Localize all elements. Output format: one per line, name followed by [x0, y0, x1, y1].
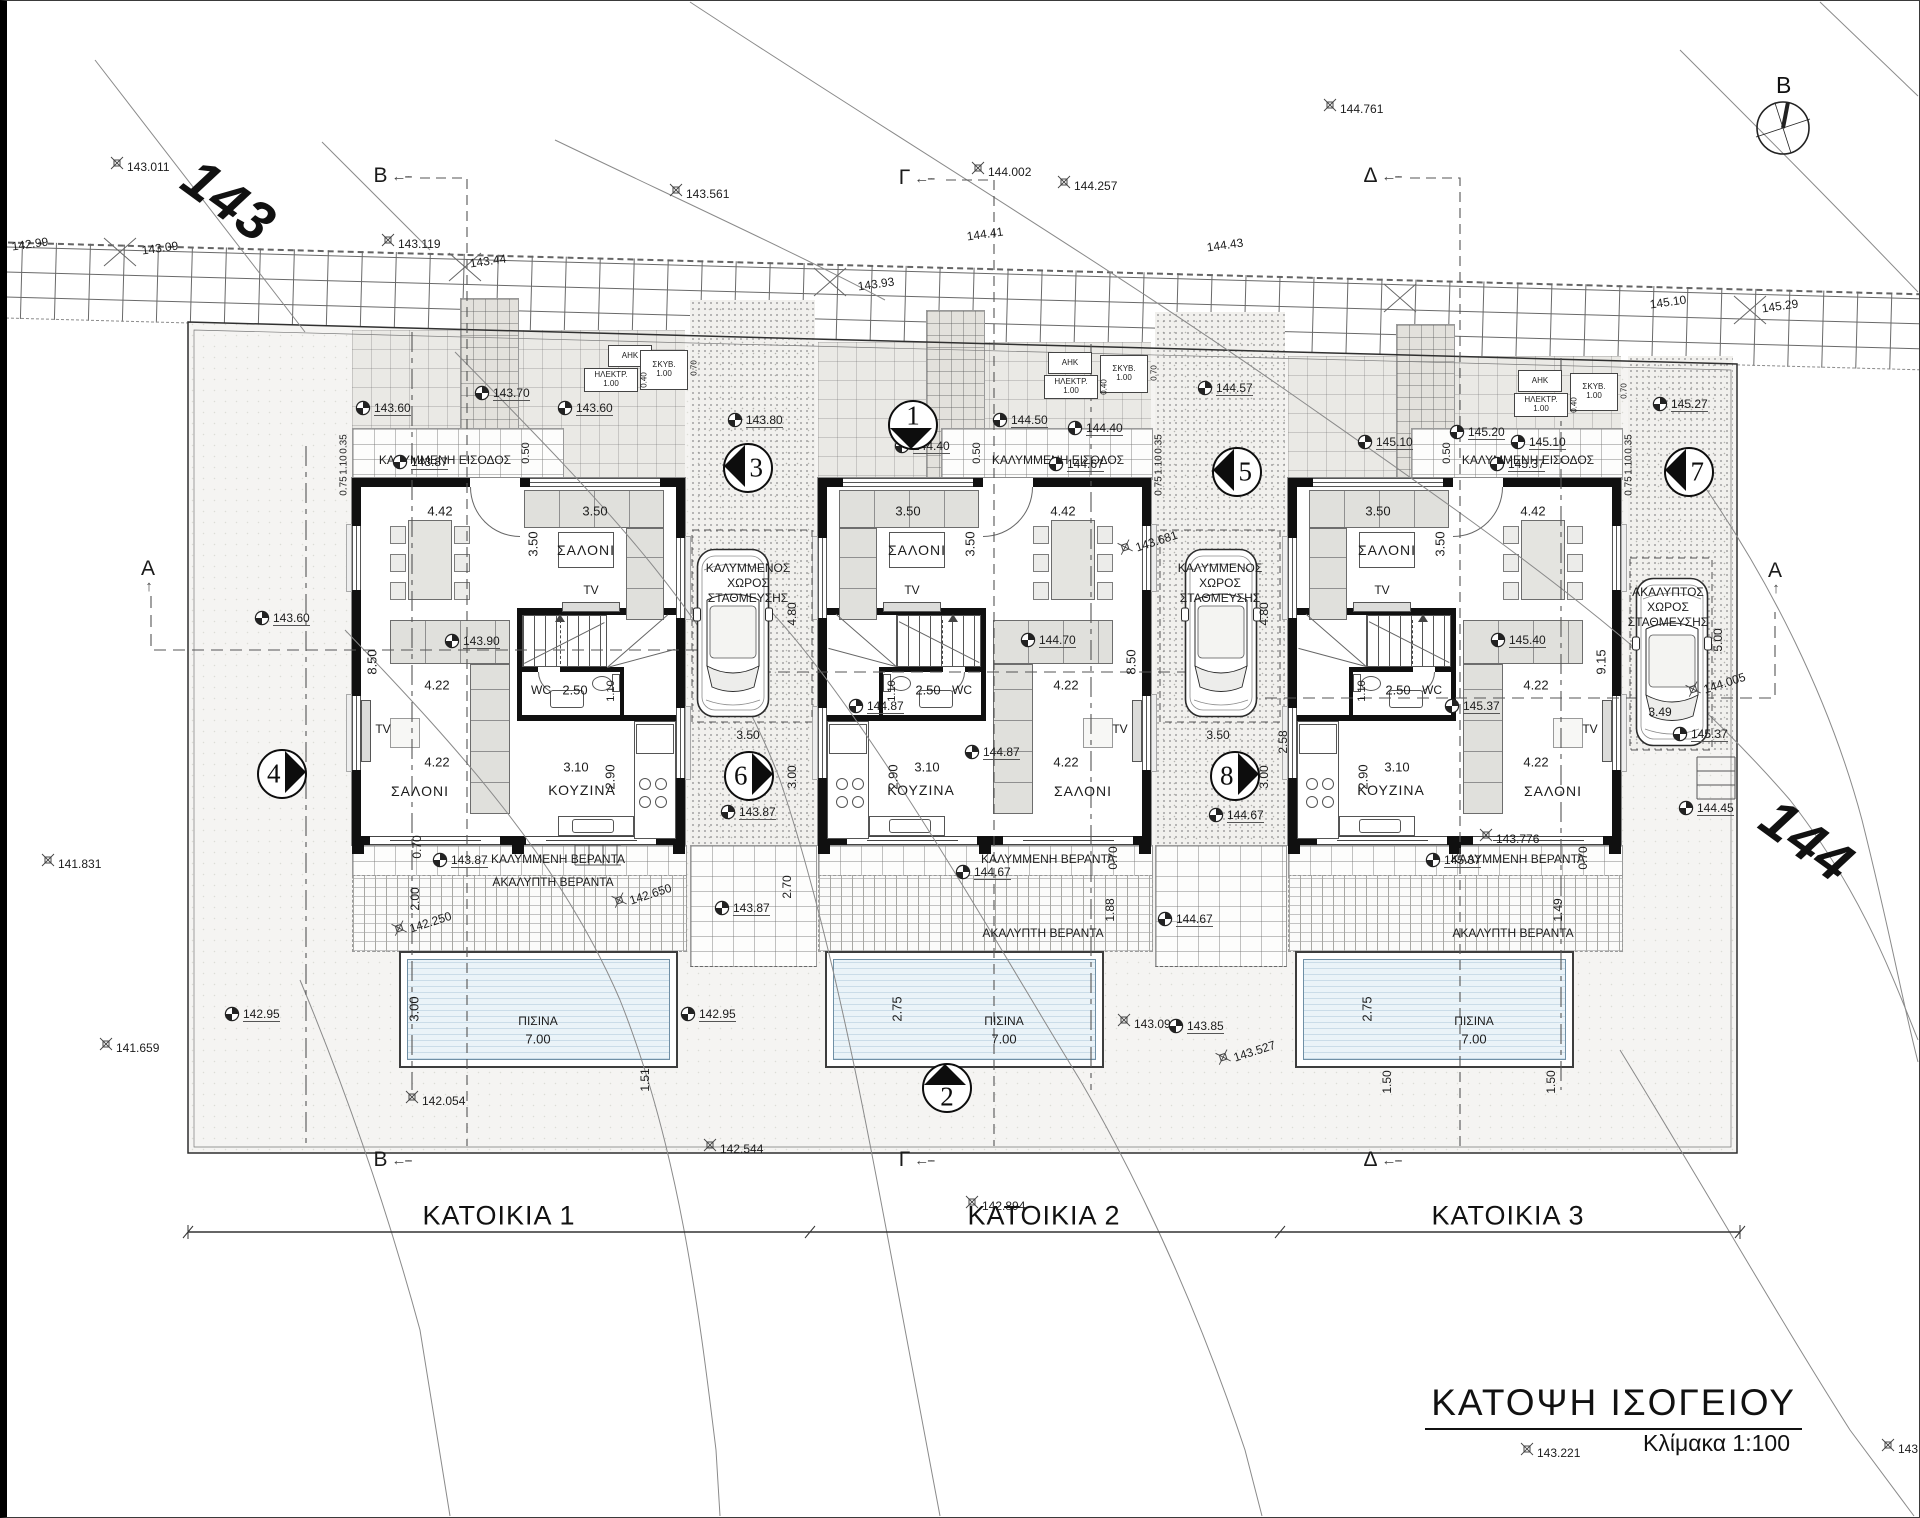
house-3-pool-water — [1303, 959, 1566, 1060]
elevation-value: 144.67 — [1227, 808, 1264, 823]
annotation-spot-18: 141.659 — [99, 1037, 159, 1051]
level-marker-icon — [474, 385, 490, 401]
annotation-text-28: 3.50 — [736, 728, 759, 742]
spot-elevation-value: 143.776 — [1496, 832, 1539, 846]
level-marker-icon — [1357, 434, 1373, 450]
house-1-wall-7 — [676, 618, 685, 708]
level-marker-icon — [1449, 424, 1465, 440]
level-marker-icon — [1067, 420, 1083, 436]
house-1-dim-living-b: 4.22 — [424, 755, 449, 770]
house-1-wall-20 — [673, 842, 685, 854]
elevation-value: 145.10 — [1376, 435, 1413, 450]
site-plan-drawing: 143 144 B ΚΑΤΟΙΚΙΑ 1 ΚΑΤΟΙΚΙΑ 2 ΚΑΤΟΙΚΙΑ… — [0, 0, 1920, 1518]
house-1-window-left-1 — [352, 526, 361, 590]
house-3-dim-wc-w: 2.50 — [1385, 683, 1410, 698]
annotation-elevation-16: 142.95 — [224, 1006, 280, 1022]
house-3-chair-0 — [1567, 526, 1583, 544]
annotation-elevation-34: 144.57 — [1197, 380, 1253, 396]
house-1-wall-0 — [352, 478, 470, 487]
elevation-value: 144.87 — [983, 745, 1020, 760]
house-2-chair-0 — [1097, 526, 1113, 544]
level-marker-icon — [714, 900, 730, 916]
house-3-elev-court-0: 145.10 — [1357, 434, 1413, 450]
house-2-dim-dining: 4.42 — [1050, 504, 1075, 519]
house-1-dim-side: 8.50 — [365, 649, 380, 674]
utility-dim-070-3: 0.70 — [1620, 383, 1629, 399]
house-3-wall-4 — [1612, 590, 1621, 696]
annotation-spot-0: 143.011 — [110, 156, 170, 170]
utility-label: ΑΗΚ — [622, 352, 638, 361]
house-2-wc-label: WC — [952, 683, 972, 697]
utility-dim: 1.00 — [603, 380, 619, 389]
house-2-pool-water — [833, 959, 1096, 1060]
house-3-sill-3 — [1282, 536, 1288, 620]
section-letter-label: Δ — [1363, 1148, 1377, 1172]
house-2-stove-burner-0 — [852, 778, 864, 790]
house-1-lounge-sofa-v — [626, 528, 664, 620]
parking-label-1: ΚΑΛΥΜΜΕΝΟΣ — [706, 561, 791, 575]
section-marker-number: 2 — [940, 1082, 954, 1113]
house-1-elev-court-2: 143.60 — [557, 400, 613, 416]
house-2-dim-kitchen-h: 2.90 — [886, 764, 901, 789]
elevation-value: 143.60 — [273, 611, 310, 626]
utility-ahk-house-2: ΑΗΚ — [1048, 352, 1092, 374]
section-arrow-icon: ←-- — [392, 168, 411, 185]
house-2-dim-kitchen-w: 3.10 — [914, 760, 939, 775]
section-marker-triangle-icon — [285, 751, 306, 793]
section-letter-label: Γ — [899, 1148, 911, 1172]
house-3-dim-entrance-2: 0.75 — [1624, 476, 1635, 495]
house-3-stove-burner-0 — [1322, 778, 1334, 790]
house-2-elev-court-2: 144.40 — [1067, 420, 1123, 436]
utility-ahk-house-3: ΑΗΚ — [1518, 370, 1562, 392]
section-letter-Γ-4: Γ←-- — [899, 1148, 934, 1172]
house-1-window-right-1 — [676, 538, 685, 618]
annotation-text-60: 0.70 — [410, 835, 424, 858]
house-1-chair-3 — [454, 526, 470, 544]
house-2-kitchen-sink — [889, 819, 931, 833]
section-marker-number: 5 — [1239, 457, 1253, 488]
spot-elevation-value: 143.221 — [1537, 1446, 1580, 1460]
annotation-spot-19: 142.054 — [405, 1090, 465, 1104]
house-1-window-top — [530, 478, 660, 487]
house-2-wall-5 — [1142, 770, 1151, 845]
annotation-spot-7: 144.002 — [971, 161, 1031, 175]
elevation-value: 144.50 — [1011, 413, 1048, 428]
house-3-dim-side: 9.15 — [1594, 649, 1609, 674]
parking-label-3: ΣΤΑΘΜΕΥΣΗΣ — [1628, 615, 1708, 629]
house-3-kitchen-sink — [1359, 819, 1401, 833]
elevation-value: 143.87 — [451, 853, 488, 868]
survey-point-icon — [1881, 1438, 1895, 1452]
house-1-wall-6 — [676, 487, 685, 538]
house-3-wall-16 — [1349, 667, 1413, 672]
annotation-spot-23: 143.6 — [1881, 1438, 1920, 1452]
house-3-wall-0 — [1503, 478, 1621, 487]
spot-elevation-value: 144.761 — [1340, 102, 1383, 116]
house-1-stair-arrow-line — [560, 620, 562, 664]
house-3-open-veranda — [1288, 875, 1623, 952]
section-marker-triangle-icon — [1665, 449, 1686, 491]
survey-point-icon — [965, 1195, 979, 1209]
spot-elevation-value: 141.831 — [58, 857, 101, 871]
house-2-window-right-1 — [818, 538, 827, 618]
contour-label-143: 143 — [170, 145, 289, 256]
level-marker-icon — [355, 400, 371, 416]
house-2-open-veranda-label: ΑΚΑΛΥΠΤΗ ΒΕΡΑΝΤΑ — [982, 926, 1103, 940]
elevation-value: 142.95 — [699, 1007, 736, 1022]
level-marker-icon — [1490, 632, 1506, 648]
house-3-dining-table — [1521, 520, 1565, 600]
house-2-living-tv — [1132, 700, 1142, 762]
annotation-spot-24: 143.776 — [1479, 828, 1539, 842]
house-3-wall-20 — [1288, 842, 1300, 854]
annotation-elevation-38: 144.67 — [1208, 807, 1264, 823]
survey-point-icon — [381, 233, 395, 247]
house-3-living-label: ΣΑΛΟΝΙ — [1524, 783, 1582, 799]
house-2-dim-side: 8.50 — [1124, 649, 1139, 674]
house-3-stove-burner-2 — [1322, 796, 1334, 808]
elevation-value: 143.90 — [463, 634, 500, 649]
house-3-living-sofa-v — [1463, 664, 1503, 814]
house-2-chair-5 — [1033, 582, 1049, 600]
house-1-wall-4 — [352, 590, 361, 696]
utility-label: ΑΗΚ — [1532, 377, 1548, 386]
section-marker-triangle-icon — [752, 753, 773, 795]
survey-point-icon — [1117, 1013, 1131, 1027]
section-marker-number: 3 — [750, 453, 764, 484]
house-3-living-tv-label: TV — [1582, 722, 1597, 736]
level-marker-icon — [1048, 456, 1064, 472]
annotation-elevation-32: 143.87 — [714, 900, 770, 916]
house-1-elev-interior: 143.90 — [444, 633, 500, 649]
annotation-spot-22: 143.221 — [1520, 1442, 1580, 1456]
section-marker-6: 6 — [724, 751, 774, 801]
house-2-dim-wc-w: 2.50 — [915, 683, 940, 698]
house-2-dim-entrance-1: 1.10 — [1154, 455, 1165, 474]
house-2-wall-18 — [1139, 842, 1151, 854]
parking-strip-lower-2 — [1155, 845, 1287, 967]
annotation-elevation-17: 142.95 — [680, 1006, 736, 1022]
house-1-wall-15 — [518, 667, 538, 672]
house-2-dim-top-off: 0.50 — [971, 442, 983, 463]
house-3-stair-arrow-head — [1418, 614, 1428, 622]
annotation-text-61: 0.70 — [1106, 846, 1120, 869]
annotation-elevation-52: 144.87 — [964, 744, 1020, 760]
section-letter-A-7: A↑ — [1768, 560, 1782, 596]
survey-point-icon — [971, 161, 985, 175]
parking-label-3: ΧΩΡΟΣ — [1647, 600, 1689, 614]
level-marker-icon — [1444, 698, 1460, 714]
house-1-living-rug — [390, 718, 420, 748]
spot-elevation-value: 143.6 — [1898, 1442, 1920, 1456]
house-3-dim-entrance-0: 0.35 — [1624, 434, 1635, 453]
house-2-wall-16 — [879, 667, 943, 672]
section-marker-number: 6 — [734, 761, 748, 792]
house-2-lounge-tv-label: TV — [904, 583, 919, 597]
annotation-text-11: 144.43 — [1206, 236, 1244, 255]
utility-label: ΑΗΚ — [1062, 359, 1078, 368]
north-compass-icon — [1756, 102, 1810, 154]
annotation-text-8: 144.41 — [966, 225, 1004, 244]
elevation-value: 144.87 — [867, 699, 904, 714]
house-3-living-tv — [1602, 700, 1612, 762]
house-3-window-left-1 — [1612, 526, 1621, 590]
annotation-elevation-48: 145.37 — [1672, 726, 1728, 742]
annotation-elevation-43: 143.85 — [1168, 1018, 1224, 1034]
parking-label-2: ΚΑΛΥΜΜΕΝΟΣ — [1178, 561, 1263, 575]
house-2-sill-4 — [812, 706, 818, 780]
house-2-stove-burner-1 — [836, 778, 848, 790]
house-1-covered-veranda-label: ΚΑΛΥΜΜΕΝΗ ΒΕΡΑΝΤΑ — [491, 852, 625, 866]
utility-dim-040-2: 0.40 — [1100, 379, 1109, 395]
house-2-window-top — [843, 478, 973, 487]
level-marker-icon — [224, 1006, 240, 1022]
elevation-value: 142.95 — [243, 1007, 280, 1022]
annotation-text-59: 2.00 — [408, 887, 422, 910]
house-2-wall-7 — [818, 618, 827, 708]
section-letter-B-0: B←-- — [373, 164, 410, 188]
house-3-sill-2 — [1621, 694, 1627, 772]
utility-dim: 1.00 — [656, 370, 672, 379]
house-3-chair-1 — [1567, 554, 1583, 572]
house-1-chair-2 — [390, 582, 406, 600]
house-3-wall-6 — [1288, 487, 1297, 538]
house-3-stair-arrow-line — [1412, 620, 1414, 664]
elevation-value: 143.87 — [411, 455, 448, 470]
house-1-pool-label: ΠΙΣΙΝΑ — [518, 1014, 557, 1028]
survey-point-icon — [669, 183, 683, 197]
utility-dim-040-1: 0.40 — [640, 372, 649, 388]
house-1-elev-entrance: 143.87 — [392, 454, 448, 470]
house-3-elev-court-2: 145.10 — [1510, 434, 1566, 450]
house-1-sill-3 — [685, 536, 691, 620]
annotation-elevation-27: 143.80 — [727, 412, 783, 428]
level-marker-icon — [848, 698, 864, 714]
house-2-wall-4 — [1142, 590, 1151, 696]
house-1-elev-court-0: 143.60 — [355, 400, 411, 416]
annotation-spot-10: 144.761 — [1323, 98, 1383, 112]
utility-dim-070-2: 0.70 — [1150, 365, 1159, 381]
annotation-elevation-53: 145.37 — [1444, 698, 1500, 714]
house-1-chair-5 — [454, 582, 470, 600]
house-1-open-veranda-label: ΑΚΑΛΥΠΤΗ ΒΕΡΑΝΤΑ — [492, 875, 613, 889]
house-1-wall-18 — [352, 842, 364, 854]
house-3-dim-entrance-1: 1.10 — [1624, 455, 1635, 474]
house-3-fridge — [1299, 724, 1337, 754]
house-1-dim-entrance-1: 1.10 — [339, 455, 350, 474]
house-3-living-rug — [1553, 718, 1583, 748]
utility-dim-070-1: 0.70 — [690, 360, 699, 376]
house-2-sill-3 — [812, 536, 818, 620]
house-3-window-top — [1313, 478, 1443, 487]
spot-elevation-value: 144.257 — [1074, 179, 1117, 193]
annotation-spot-21: 142.894 — [965, 1195, 1025, 1209]
spot-elevation-value: 142.544 — [720, 1142, 763, 1156]
utility-elektr-house-2: ΗΛΕΚΤΡ.1.00 — [1044, 375, 1098, 399]
house-2-window-right-2 — [818, 708, 827, 778]
house-1-dim-pool-w: 7.00 — [525, 1032, 550, 1047]
house-2-elev-entrance: 144.67 — [1048, 456, 1104, 472]
elevation-value: 144.57 — [1216, 381, 1253, 396]
house-1-fridge — [636, 724, 674, 754]
section-letter-label: B — [373, 1148, 387, 1172]
annotation-elevation-49: 144.45 — [1678, 800, 1734, 816]
house-2-door-veranda-1 — [1003, 836, 1133, 845]
survey-point-icon — [1479, 828, 1493, 842]
house-3-wall-8 — [1288, 778, 1297, 845]
house-2-dim-living-b: 4.22 — [1053, 755, 1078, 770]
utility-dim: 1.00 — [1063, 387, 1079, 396]
elevation-value: 145.37 — [1444, 853, 1481, 868]
level-marker-icon — [964, 744, 980, 760]
section-letter-B-3: B←-- — [373, 1148, 410, 1172]
house-1-lounge-tv — [562, 602, 620, 612]
house-3-wc-label: WC — [1422, 683, 1442, 697]
house-2-stove-burner-2 — [852, 796, 864, 808]
house-1-stove-burner-3 — [655, 796, 667, 808]
section-marker-3: 3 — [723, 443, 773, 493]
section-letter-Γ-1: Γ←-- — [899, 166, 934, 190]
house-2-dim-pool-h: 2.75 — [890, 996, 905, 1021]
house-3-pool-label: ΠΙΣΙΝΑ — [1454, 1014, 1493, 1028]
elevation-value: 144.67 — [974, 865, 1011, 880]
house-2-stair-arrow-line — [942, 620, 944, 664]
utility-elektr-house-3: ΗΛΕΚΤΡ.1.00 — [1514, 393, 1568, 417]
house-1-dim-pool-h: 3.00 — [407, 996, 422, 1021]
house-1-dim-kitchen-w: 3.10 — [563, 760, 588, 775]
house-1-lounge-tv-label: TV — [583, 583, 598, 597]
house-1-door-veranda-1 — [370, 836, 500, 845]
annotation-text-40: 2.58 — [1276, 730, 1290, 753]
survey-point-icon — [41, 853, 55, 867]
section-arrow-icon: ←-- — [914, 1152, 933, 1169]
house-2-chair-2 — [1097, 582, 1113, 600]
house-2-lounge-tv — [883, 602, 941, 612]
level-marker-icon — [557, 400, 573, 416]
level-marker-icon — [1157, 911, 1173, 927]
house-2-sill-2 — [1151, 694, 1157, 772]
annotation-text-58: 1.49 — [1551, 898, 1565, 921]
parking-label-3: ΑΚΑΛΥΠΤΟΣ — [1632, 585, 1704, 599]
house-2-dining-table — [1051, 520, 1095, 600]
survey-point-icon — [1520, 1442, 1534, 1456]
level-marker-icon — [1678, 800, 1694, 816]
level-marker-icon — [727, 412, 743, 428]
house-3-dim-pool-w: 7.00 — [1461, 1032, 1486, 1047]
annotation-elevation-31: 143.87 — [720, 804, 776, 820]
section-letter-label: A — [1768, 560, 1782, 581]
section-marker-triangle-icon — [1238, 753, 1259, 795]
house-1-stove-burner-2 — [639, 796, 651, 808]
house-3-stove-burner-3 — [1306, 796, 1318, 808]
house-3-wall-18 — [1609, 842, 1621, 854]
house-2-living-label: ΣΑΛΟΝΙ — [1054, 783, 1112, 799]
house-2-living-sofa-v — [993, 664, 1033, 814]
house-1-wall-5 — [352, 770, 361, 845]
house-1-dim-lounge-w: 3.50 — [582, 504, 607, 519]
survey-point-icon — [405, 1090, 419, 1104]
house-1-stove-burner-0 — [639, 778, 651, 790]
house-1-dim-wc-h: 1.10 — [605, 680, 617, 701]
spot-elevation-value: 143.119 — [398, 237, 441, 251]
house-3-wall-15 — [1435, 667, 1455, 672]
house-3-dim-wc-h: 1.10 — [1356, 680, 1368, 701]
level-marker-icon — [444, 633, 460, 649]
house-1-living-label: ΣΑΛΟΝΙ — [391, 783, 449, 799]
house-3-dim-living-a: 4.22 — [1523, 678, 1548, 693]
utility-dim: 1.00 — [1533, 405, 1549, 414]
elevation-value: 144.67 — [1067, 457, 1104, 472]
spot-elevation-value: 144.002 — [988, 165, 1031, 179]
house-1-wall-17 — [620, 672, 624, 715]
house-2-wall-3 — [1142, 487, 1151, 526]
house-2-wall-0 — [1033, 478, 1151, 487]
house-2-wall-8 — [818, 778, 827, 845]
north-label: B — [1776, 72, 1791, 99]
section-arrow-icon: ←-- — [392, 1152, 411, 1169]
house-2-dim-lounge-w: 3.50 — [895, 504, 920, 519]
level-marker-icon — [1208, 807, 1224, 823]
house-1-sill-2 — [346, 694, 352, 772]
house-2-elev-court-1: 144.50 — [992, 412, 1048, 428]
survey-point-icon — [99, 1037, 113, 1051]
scale-label: Κλίμακα 1:100 — [1643, 1430, 1790, 1457]
elevation-value: 143.85 — [1187, 1019, 1224, 1034]
annotation-text-62: 0.70 — [1576, 846, 1590, 869]
house-2-elev-interior: 144.70 — [1020, 632, 1076, 648]
house-1-window-left-2 — [352, 696, 361, 770]
house-1-wall-3 — [352, 487, 361, 526]
house-2-dim-living-a: 4.22 — [1053, 678, 1078, 693]
house-1-dim-entrance-2: 0.75 — [339, 476, 350, 495]
annotation-text-57: 1.88 — [1103, 898, 1117, 921]
house-2-wall-6 — [818, 487, 827, 538]
house-1-wall-8 — [676, 778, 685, 845]
elevation-value: 145.37 — [1691, 727, 1728, 742]
house-2-dim-pool-w: 7.00 — [991, 1032, 1016, 1047]
house-1-dim-kitchen-h: 2.90 — [603, 764, 618, 789]
house-3-sill-1 — [1621, 524, 1627, 592]
utility-dim: 1.00 — [1586, 392, 1602, 401]
annotation-spot-14: 141.831 — [41, 853, 101, 867]
level-marker-icon — [1425, 852, 1441, 868]
house-1-window-right-2 — [676, 708, 685, 778]
house-3-lounge-sofa-v — [1309, 528, 1347, 620]
house-3-elev-veranda: 145.37 — [1425, 852, 1481, 868]
house-2-stair-arrow-head — [948, 614, 958, 622]
house-1-living-tv — [361, 700, 371, 762]
house-1-lounge-label: ΣΑΛΟΝΙ — [557, 542, 615, 558]
annotation-text-55: 1.50 — [1380, 1070, 1394, 1093]
utility-elektr-house-1: ΗΛΕΚΤΡ.1.00 — [584, 368, 638, 392]
house-2-pool-label: ΠΙΣΙΝΑ — [984, 1014, 1023, 1028]
annotation-text-30: 3.00 — [785, 765, 799, 788]
survey-point-icon — [110, 156, 124, 170]
spot-elevation-value: 143.011 — [127, 160, 170, 174]
spot-elevation-value: 142.894 — [982, 1199, 1025, 1213]
house-3-chair-3 — [1503, 526, 1519, 544]
house-3-wall-7 — [1288, 618, 1297, 708]
section-arrow-icon: ←-- — [1382, 168, 1401, 185]
house-1-dim-living-a: 4.22 — [424, 678, 449, 693]
elevation-value: 143.60 — [576, 401, 613, 416]
house-3-dim-kitchen-w: 3.10 — [1384, 760, 1409, 775]
utility-dim-040-3: 0.40 — [1570, 397, 1579, 413]
survey-point-icon — [703, 1138, 717, 1152]
contour-label-144: 144 — [1748, 785, 1867, 896]
section-arrow-icon: ↑ — [1772, 581, 1778, 596]
